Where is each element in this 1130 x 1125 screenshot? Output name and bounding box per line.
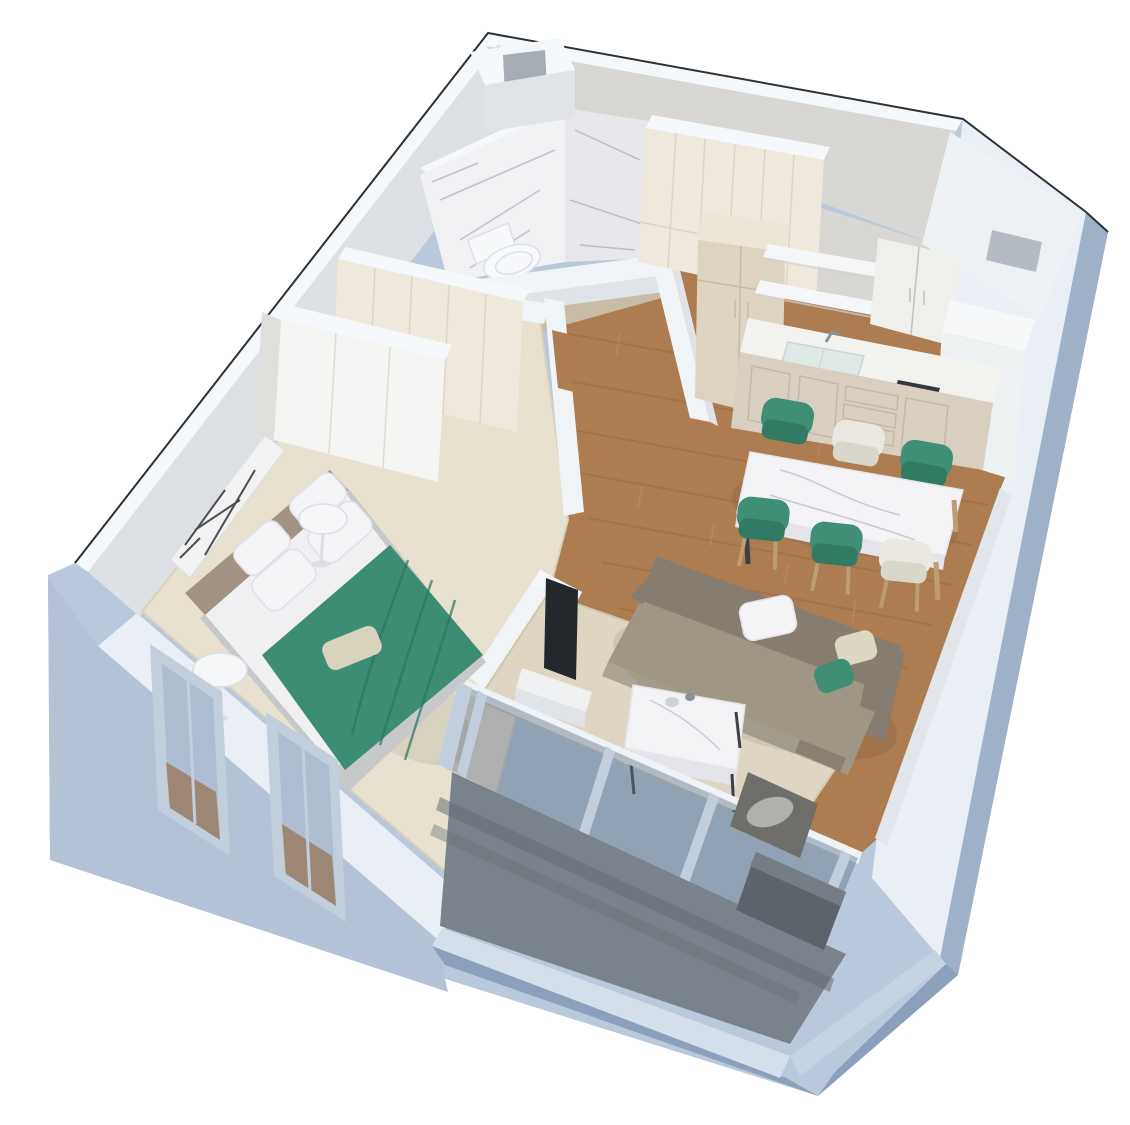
tv (544, 578, 578, 680)
floor-plan-render (0, 0, 1130, 1125)
